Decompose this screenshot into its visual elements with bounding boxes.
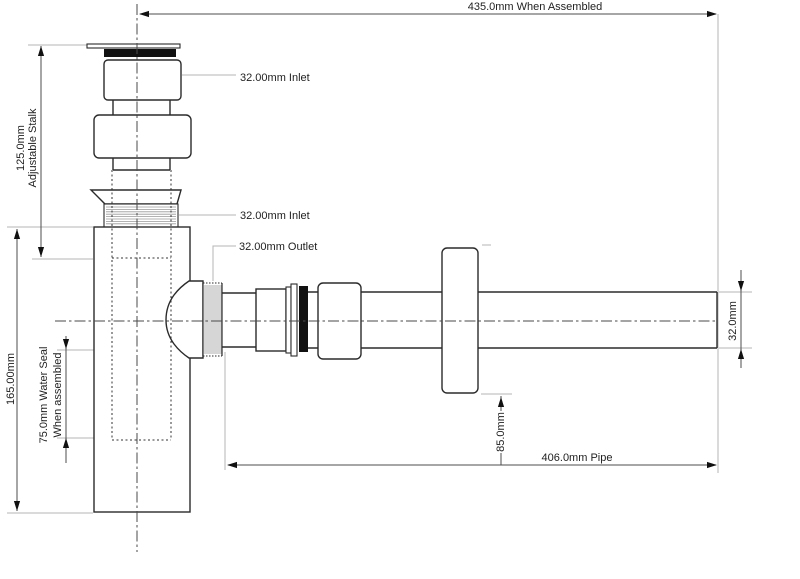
compression-seal-ring (299, 286, 308, 352)
label-outlet: 32.00mm Outlet (239, 241, 317, 253)
label-body-height: 165.00mm (5, 353, 17, 405)
stalk-nut (94, 115, 191, 158)
bottle-trap-body (94, 227, 190, 512)
stalk-collar (91, 190, 181, 204)
inlet-seal-ring (104, 49, 176, 57)
collar-ring-inner (286, 287, 291, 353)
label-inlet-top: 32.00mm Inlet (240, 72, 310, 84)
label-pipe-diameter: 32.0mm (727, 301, 739, 341)
label-water-seal-line2: When assembled (52, 353, 64, 438)
inlet-nut (104, 60, 181, 100)
collar-ring-outer (291, 284, 297, 356)
label-inlet-lower: 32.00mm Inlet (240, 210, 310, 222)
label-pipe-length: 406.0mm Pipe (542, 452, 613, 464)
stalk-threads (104, 204, 178, 228)
label-water-seal-line1: 75.0mm Water Seal (38, 347, 50, 444)
bottle-trap-drawing: 435.0mm When Assembled 32.00mm Inlet 32.… (0, 0, 800, 579)
outlet-threads-hatch (205, 285, 221, 354)
label-stalk-length: 125.0mm (15, 125, 27, 171)
label-stalk-name: Adjustable Stalk (27, 108, 39, 187)
outlet-sleeve (256, 289, 286, 351)
label-assembled-width: 435.0mm When Assembled (468, 1, 603, 13)
technical-drawing-page: 435.0mm When Assembled 32.00mm Inlet 32.… (0, 0, 800, 579)
inlet-washer (87, 44, 180, 48)
label-flange-diameter: 85.0mm (495, 412, 507, 452)
